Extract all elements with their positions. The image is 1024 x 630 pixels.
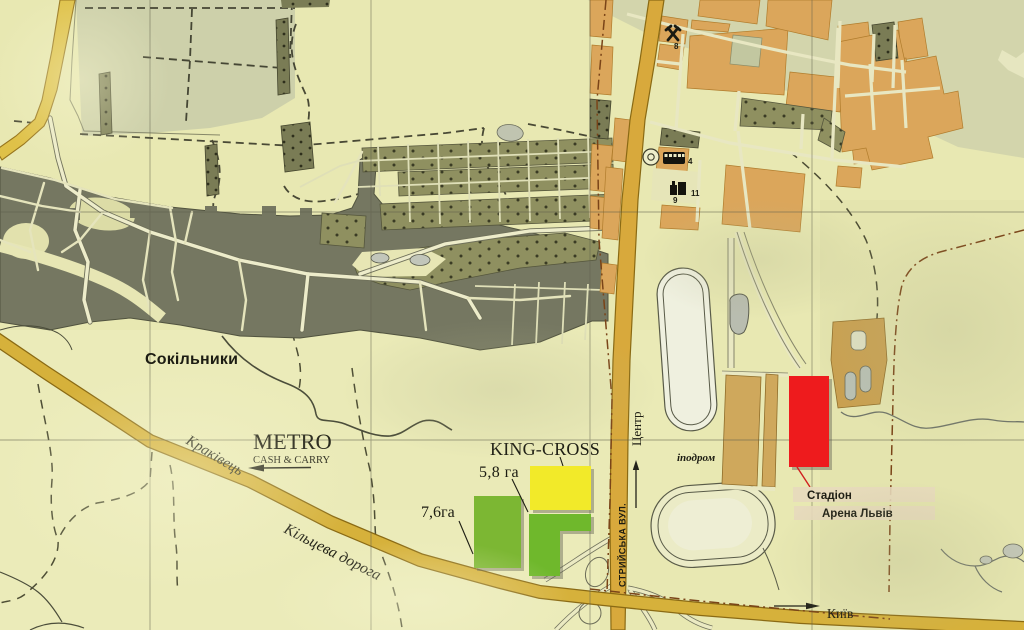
svg-text:METRO: METRO bbox=[253, 429, 332, 454]
svg-text:11: 11 bbox=[691, 189, 700, 198]
svg-text:9: 9 bbox=[673, 196, 678, 205]
svg-text:Сокільники: Сокільники bbox=[145, 351, 238, 368]
svg-text:5,8 га: 5,8 га bbox=[479, 464, 519, 481]
svg-text:Арена Львів: Арена Львів bbox=[822, 508, 893, 520]
svg-text:Київ: Київ bbox=[827, 606, 853, 621]
svg-text:4: 4 bbox=[688, 157, 693, 166]
svg-text:іподром: іподром bbox=[677, 452, 716, 464]
svg-text:CASH & CARRY: CASH & CARRY bbox=[253, 455, 330, 466]
svg-text:СТРИЙСЬКА ВУЛ.: СТРИЙСЬКА ВУЛ. bbox=[617, 503, 628, 587]
svg-text:KING-CROSS: KING-CROSS bbox=[490, 439, 600, 459]
svg-text:7,6га: 7,6га bbox=[421, 504, 455, 521]
svg-text:Стадіон: Стадіон bbox=[807, 490, 852, 502]
svg-text:8: 8 bbox=[674, 42, 679, 51]
svg-text:Центр: Центр bbox=[629, 412, 644, 446]
